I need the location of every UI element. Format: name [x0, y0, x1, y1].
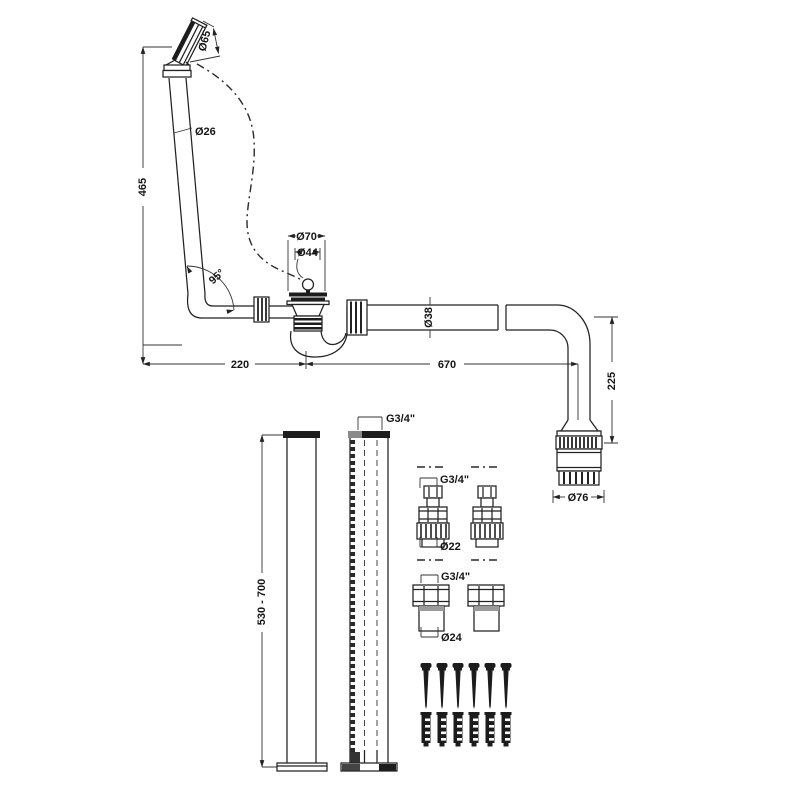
dim-standpipe-height: 530 - 700 [256, 435, 283, 767]
overflow-pipe-coupling [254, 297, 269, 322]
coupler-thread-label: G3/4" [441, 571, 470, 583]
standpipe-section: G3/4" [341, 413, 415, 771]
dim-o44-label: Ø44 [297, 247, 319, 259]
dim-225-label: 225 [606, 372, 618, 390]
overflow-elbow-rib [163, 71, 191, 78]
bath-waste: Ø70 Ø44 [287, 231, 367, 357]
coupler-fitting [413, 585, 449, 631]
union-fittings-row: G3/4" [417, 467, 503, 553]
union-fitting [471, 486, 503, 547]
standpipe-thread-label: G3/4" [386, 413, 415, 425]
dim-overflow-height: 465 [137, 47, 182, 364]
screws-set [421, 663, 512, 709]
dim-o70-label: Ø70 [296, 231, 317, 243]
dim-o38-label: Ø38 [423, 307, 435, 328]
union-pipe-dia-label: Ø22 [440, 541, 461, 553]
standpipe-plain [277, 431, 327, 771]
coupler-fittings-row: G3/4" Ø24 [413, 560, 504, 644]
wall-plugs-set [421, 712, 512, 747]
dim-220-label: 220 [231, 359, 249, 371]
overflow-outlet: Ø65 [163, 18, 220, 77]
trap-connector: Ø76 [553, 420, 604, 504]
waste-outlet-coupling [347, 300, 367, 335]
waste-pipe: Ø38 [367, 297, 590, 420]
union-thread-label: G3/4" [440, 474, 469, 486]
overflow-pipe: Ø26 95° [169, 78, 296, 322]
overflow-elbow-rib [164, 65, 190, 71]
coupler-pipe-dia-label: Ø24 [441, 632, 463, 644]
coupler-fitting [468, 585, 504, 631]
dim-drop: 225 [594, 317, 618, 443]
dim-465-label: 465 [137, 178, 149, 196]
technical-drawing-bath-waste-kit: 465 Ø65 Ø26 95° [0, 0, 800, 800]
dim-670-label: 670 [438, 359, 456, 371]
dim-530-700-label: 530 - 700 [256, 579, 268, 625]
dim-bottom-run: 220 670 [143, 351, 578, 420]
drawing-svg: 465 Ø65 Ø26 95° [0, 0, 800, 800]
dim-o26-label: Ø26 [195, 126, 216, 138]
union-fitting [417, 486, 449, 547]
dim-o76-label: Ø76 [568, 492, 589, 504]
plug-ball [303, 279, 314, 290]
